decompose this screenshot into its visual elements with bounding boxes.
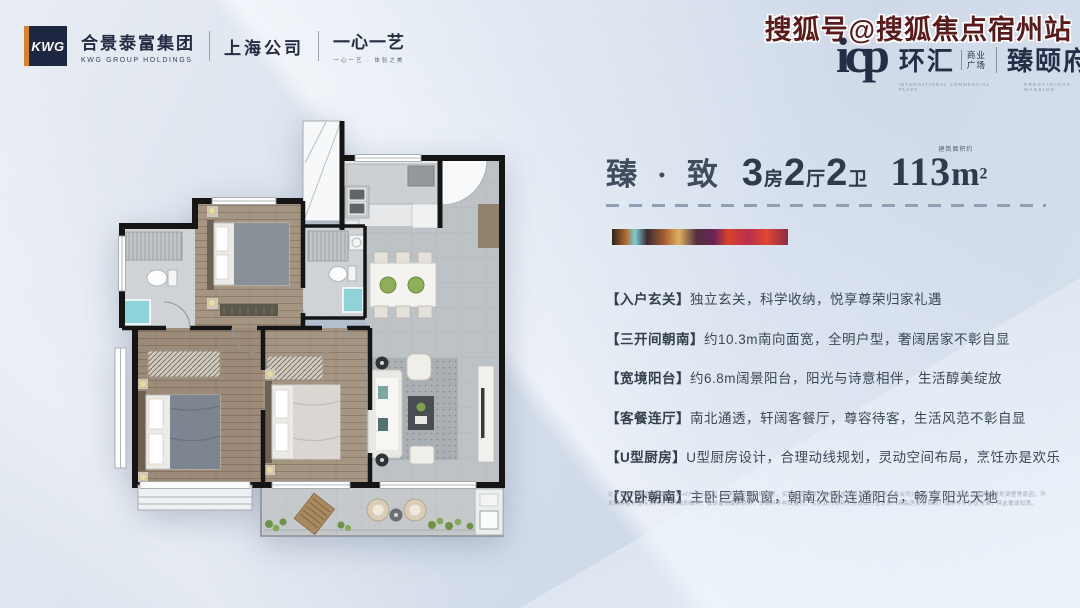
coffee-table bbox=[408, 396, 434, 430]
feature-tag: 【客餐连厅】 bbox=[606, 411, 690, 426]
kwg-logo-text: 合景泰富集团 KWG GROUP HOLDINGS bbox=[81, 29, 195, 64]
table-plant bbox=[380, 277, 396, 293]
header-logos: KWG 合景泰富集团 KWG GROUP HOLDINGS 上海公司 一心一艺 … bbox=[24, 26, 405, 66]
unit-title: 臻 · 致 3房2厅2卫 建筑面积约113m2 bbox=[606, 148, 987, 195]
wardrobe bbox=[267, 356, 323, 380]
wardrobe bbox=[148, 351, 220, 377]
tv-cabinet bbox=[478, 366, 494, 462]
feature-item: 【客餐连厅】南北通透，轩阔客餐厅，尊容待客，生活风范不彰自显 bbox=[606, 407, 1076, 427]
rooms-count: 3 bbox=[742, 152, 763, 195]
dashed-underline bbox=[606, 204, 1046, 207]
feature-item: 【三开间朝南】约10.3m南向面宽，全明户型，奢阔居家不彰自显 bbox=[606, 328, 1076, 348]
kwg-name-en: KWG GROUP HOLDINGS bbox=[81, 57, 195, 64]
floor-plan bbox=[112, 108, 512, 548]
feature-desc: U型厨房设计，合理动线规划，灵动空间布局，烹饪亦是欢乐 bbox=[686, 450, 1060, 465]
mall-name: 环汇 bbox=[899, 41, 955, 78]
toilet bbox=[329, 267, 347, 282]
feature-list: 【入户玄关】独立玄关，科学收纳，悦享尊荣归家礼遇 【三开间朝南】约10.3m南向… bbox=[606, 288, 1076, 506]
logo-divider bbox=[209, 31, 210, 61]
stove bbox=[408, 166, 434, 186]
dining-area bbox=[370, 252, 436, 318]
unit-spec: 3房2厅2卫 bbox=[742, 152, 868, 195]
mall-type: 商业 广场 bbox=[961, 50, 986, 70]
area-power: 2 bbox=[979, 166, 987, 183]
feature-desc: 独立玄关，科学收纳，悦享尊荣归家礼遇 bbox=[690, 292, 942, 307]
yixin-yiyi-name: 一心一艺 bbox=[333, 28, 405, 53]
feature-tag: 【三开间朝南】 bbox=[606, 332, 704, 347]
bench bbox=[220, 304, 278, 316]
brand-captions: INTERNATIONAL COMMERCIAL PLAZA PRESTIGIO… bbox=[899, 82, 1080, 92]
logo-divider bbox=[318, 31, 319, 61]
ottoman bbox=[410, 446, 434, 464]
balcony bbox=[261, 485, 503, 536]
shower-tub bbox=[343, 288, 363, 312]
mall-type-line1: 商业 bbox=[967, 50, 986, 60]
halls-count: 2 bbox=[784, 152, 805, 195]
mall-type-line2: 广场 bbox=[967, 60, 986, 70]
feature-item: 【宽境阳台】约6.8m阔景阳台，阳光与诗意相伴，生活醇美绽放 bbox=[606, 367, 1076, 387]
area-note: 建筑面积约 bbox=[938, 144, 973, 153]
lamp bbox=[140, 381, 147, 388]
brand-names: 环汇 商业 广场 臻颐府 INTERNATIONAL COMMERCIAL PL… bbox=[899, 41, 1080, 92]
lamp bbox=[209, 208, 216, 215]
halls-label: 厅 bbox=[806, 164, 825, 191]
yixin-yiyi-tagline: 一心一艺 · 体验之美 bbox=[334, 56, 405, 64]
feature-item: 【入户玄关】独立玄关，科学收纳，悦享尊荣归家礼遇 bbox=[606, 288, 1076, 308]
tv bbox=[481, 388, 485, 438]
kwg-logo-box: KWG bbox=[29, 26, 67, 66]
fridge bbox=[412, 204, 438, 228]
decorative-color-strip bbox=[612, 229, 788, 245]
disclaimer: 此户型图为臻颐府建面约113㎡户型示意图，结构及尺寸仅供参考，实际以政府部门最终… bbox=[608, 491, 1046, 508]
shanghai-company-label: 上海公司 bbox=[224, 34, 304, 59]
unit-name: 臻 · 致 bbox=[606, 149, 724, 194]
feature-desc: 约6.8m阔景阳台，阳光与诗意相伴，生活醇美绽放 bbox=[690, 371, 1002, 386]
baths-count: 2 bbox=[826, 152, 847, 195]
shower bbox=[308, 231, 348, 261]
toilet bbox=[147, 270, 167, 286]
area-value: 113 bbox=[890, 149, 951, 194]
brand-divider bbox=[996, 47, 997, 73]
balcony-sink-cabinet bbox=[475, 489, 503, 535]
project-brand-block: icp 环汇 商业 广场 臻颐府 INTERNATIONAL COMMERCIA… bbox=[836, 32, 1080, 92]
unit-area: 建筑面积约113m2 bbox=[890, 148, 987, 195]
lamp bbox=[140, 474, 147, 481]
feature-tag: 【宽境阳台】 bbox=[606, 371, 690, 386]
master-bedroom bbox=[138, 351, 220, 482]
brand-name-row: 环汇 商业 广场 臻颐府 bbox=[899, 41, 1080, 78]
shower bbox=[126, 232, 182, 260]
baths-label: 卫 bbox=[848, 164, 867, 191]
feature-desc: 南北通透，轩阔客餐厅，尊容待客，生活风范不彰自显 bbox=[690, 411, 1026, 426]
bathtub bbox=[124, 300, 150, 324]
feature-tag: 【U型厨房】 bbox=[606, 450, 686, 465]
armchair bbox=[407, 354, 431, 380]
lamp bbox=[267, 467, 274, 474]
mall-name-en: INTERNATIONAL COMMERCIAL PLAZA bbox=[899, 82, 1006, 92]
kwg-name-cn: 合景泰富集团 bbox=[81, 29, 195, 54]
kitchen-sink bbox=[349, 189, 365, 200]
area-unit: m bbox=[951, 156, 979, 193]
lamp bbox=[209, 300, 216, 307]
feature-tag: 【入户玄关】 bbox=[606, 292, 690, 307]
rooms-label: 房 bbox=[764, 164, 783, 191]
feature-desc: 约10.3m南向面宽，全明户型，奢阔居家不彰自显 bbox=[704, 332, 1010, 347]
page: KWG 合景泰富集团 KWG GROUP HOLDINGS 上海公司 一心一艺 … bbox=[0, 0, 1080, 608]
kwg-logo-icon: KWG bbox=[24, 26, 67, 66]
icp-logo: icp bbox=[836, 32, 885, 78]
washer bbox=[349, 235, 364, 250]
feature-item: 【U型厨房】U型厨房设计，合理动线规划，灵动空间布局，烹饪亦是欢乐 bbox=[606, 446, 1076, 466]
residence-name-en: PRESTIGIOUS MANSION bbox=[1024, 82, 1080, 92]
table-plant bbox=[408, 277, 424, 293]
lamp bbox=[267, 371, 274, 378]
kwg-mark-text: KWG bbox=[31, 39, 64, 54]
residence-name: 臻颐府 bbox=[1007, 41, 1080, 78]
yixin-yiyi-logo: 一心一艺 一心一艺 · 体验之美 bbox=[333, 28, 405, 64]
entry-mat bbox=[478, 204, 500, 248]
